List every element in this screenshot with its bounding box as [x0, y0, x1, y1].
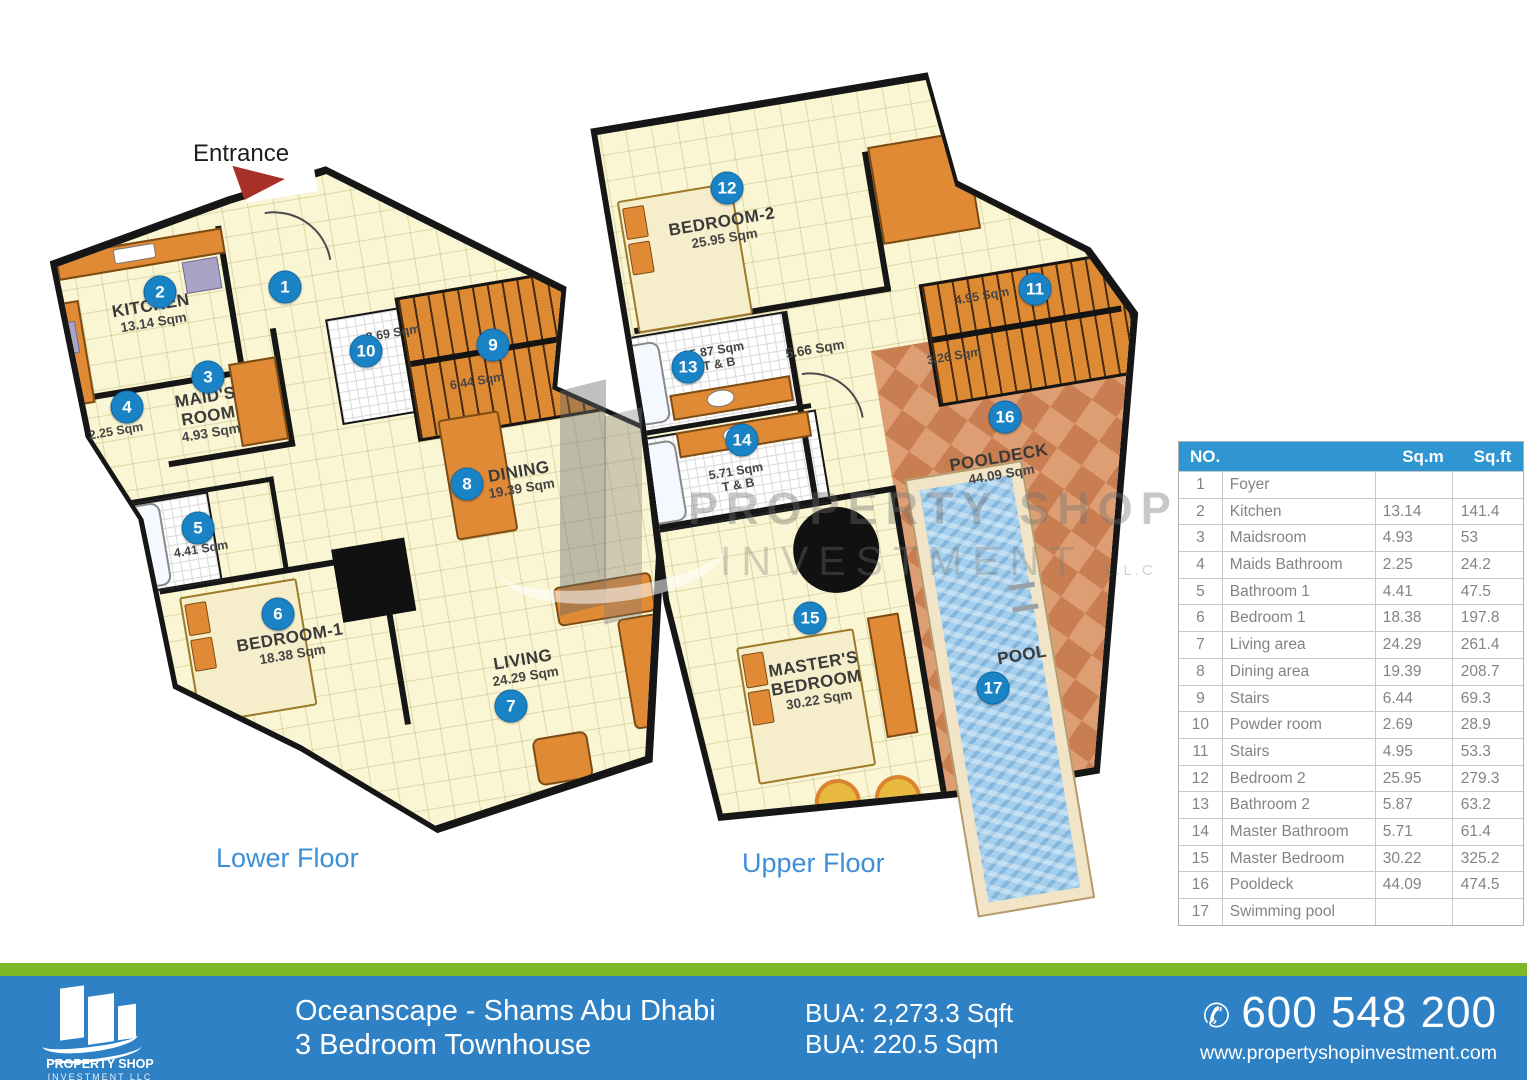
table-cell: 12 [1179, 766, 1223, 792]
bua-values: BUA: 2,273.3 Sqft BUA: 220.5 Sqm [805, 998, 1013, 1060]
structural-column [787, 500, 886, 599]
table-cell: 6 [1179, 605, 1223, 631]
table-cell: Swimming pool [1223, 899, 1376, 925]
table-cell: 17 [1179, 899, 1223, 925]
table-cell: 279.3 [1453, 766, 1523, 792]
area-table: NO. Sq.m Sq.ft 1Foyer2Kitchen13.14141.43… [1178, 441, 1524, 926]
table-row: 8Dining area19.39208.7 [1179, 658, 1523, 685]
table-cell: 4 [1179, 552, 1223, 578]
room-badge-13: 13 [672, 351, 705, 384]
area-table-body: 1Foyer2Kitchen13.14141.43Maidsroom4.9353… [1179, 471, 1523, 925]
phone-number-text: 600 548 200 [1241, 988, 1497, 1037]
table-row: 9Stairs6.4469.3 [1179, 685, 1523, 712]
table-row: 12Bedroom 225.95279.3 [1179, 765, 1523, 792]
table-cell: 28.9 [1453, 712, 1523, 738]
phone-icon: ✆ [1203, 997, 1232, 1034]
table-cell: 2 [1179, 499, 1223, 525]
hall-door-arc [802, 364, 864, 426]
table-cell: 7 [1179, 632, 1223, 658]
phone-number: ✆600 548 200 [1200, 988, 1497, 1041]
room-badge-14: 14 [726, 424, 759, 457]
table-cell: Pooldeck [1223, 872, 1376, 898]
table-cell: 325.2 [1453, 846, 1523, 872]
table-row: 5Bathroom 14.4147.5 [1179, 578, 1523, 605]
upper-floor-caption: Upper Floor [742, 848, 885, 879]
table-row: 7Living area24.29261.4 [1179, 631, 1523, 658]
table-cell: 4.95 [1376, 739, 1453, 765]
table-cell: 474.5 [1453, 872, 1523, 898]
table-cell: 53.3 [1453, 739, 1523, 765]
table-cell: Bedroom 1 [1223, 605, 1376, 631]
table-cell: 24.2 [1453, 552, 1523, 578]
table-row: 2Kitchen13.14141.4 [1179, 498, 1523, 525]
project-name: Oceanscape - Shams Abu Dhabi [295, 994, 716, 1028]
table-cell: Stairs [1223, 739, 1376, 765]
room-badge-3: 3 [192, 361, 225, 394]
entrance-label: Entrance [193, 140, 289, 168]
table-cell: 10 [1179, 712, 1223, 738]
area-table-header: NO. Sq.m Sq.ft [1179, 442, 1523, 471]
lower-floor-caption: Lower Floor [216, 843, 359, 874]
table-cell: 261.4 [1453, 632, 1523, 658]
wall-segment [268, 476, 289, 571]
table-cell: Bedroom 2 [1223, 766, 1376, 792]
table-cell: 5 [1179, 579, 1223, 605]
table-cell: 3 [1179, 525, 1223, 551]
table-cell: Maidsroom [1223, 525, 1376, 551]
header-no: NO. [1179, 447, 1384, 467]
table-cell: Kitchen [1223, 499, 1376, 525]
table-cell: Master Bathroom [1223, 819, 1376, 845]
footer-green-bar [0, 963, 1527, 976]
table-row: 1Foyer [1179, 471, 1523, 498]
bua-sqft: BUA: 2,273.3 Sqft [805, 998, 1013, 1029]
unit-type: 3 Bedroom Townhouse [295, 1028, 716, 1062]
website-url: www.propertyshopinvestment.com [1200, 1042, 1497, 1065]
table-row: 10Powder room2.6928.9 [1179, 711, 1523, 738]
project-title: Oceanscape - Shams Abu Dhabi 3 Bedroom T… [295, 994, 716, 1062]
table-row: 14Master Bathroom5.7161.4 [1179, 818, 1523, 845]
table-cell: 197.8 [1453, 605, 1523, 631]
room-badge-8: 8 [451, 468, 484, 501]
table-row: 13Bathroom 25.8763.2 [1179, 791, 1523, 818]
table-cell: 14 [1179, 819, 1223, 845]
logo-subtext: INVESTMENT LLC [30, 1072, 170, 1080]
room-badge-12: 12 [711, 172, 744, 205]
table-cell: 8 [1179, 659, 1223, 685]
table-cell: 11 [1179, 739, 1223, 765]
table-cell: Foyer [1223, 472, 1376, 498]
table-cell: Dining area [1223, 659, 1376, 685]
table-cell: 141.4 [1453, 499, 1523, 525]
entrance-door-arc [264, 203, 331, 270]
room-badge-1: 1 [269, 271, 302, 304]
table-cell: 25.95 [1376, 766, 1453, 792]
bua-sqm: BUA: 220.5 Sqm [805, 1029, 1013, 1060]
table-cell: 1 [1179, 472, 1223, 498]
table-cell [1376, 472, 1453, 498]
table-cell: 44.09 [1376, 872, 1453, 898]
upper-plan-floor [517, 20, 1222, 890]
table-cell: 6.44 [1376, 686, 1453, 712]
table-cell: 24.29 [1376, 632, 1453, 658]
room-badge-10: 10 [350, 335, 383, 368]
table-cell: Master Bedroom [1223, 846, 1376, 872]
header-sqm: Sq.m [1384, 447, 1462, 467]
room-badge-9: 9 [477, 329, 510, 362]
table-row: 3Maidsroom4.9353 [1179, 524, 1523, 551]
table-row: 11Stairs4.9553.3 [1179, 738, 1523, 765]
room-badge-6: 6 [262, 598, 295, 631]
table-cell: Bathroom 2 [1223, 792, 1376, 818]
table-cell: 61.4 [1453, 819, 1523, 845]
room-badge-11: 11 [1019, 273, 1052, 306]
table-cell [1376, 899, 1453, 925]
structural-column [331, 538, 416, 623]
table-cell: 53 [1453, 525, 1523, 551]
room-badge-15: 15 [794, 602, 827, 635]
room-badge-5: 5 [182, 512, 215, 545]
table-cell: 4.41 [1376, 579, 1453, 605]
floorplan-poster: PROPERTY SHOP INVESTMENT L.L.C Entrance … [0, 0, 1527, 1080]
table-cell: 13 [1179, 792, 1223, 818]
table-cell: 13.14 [1376, 499, 1453, 525]
table-row: 6Bedroom 118.38197.8 [1179, 604, 1523, 631]
table-cell: 5.87 [1376, 792, 1453, 818]
table-cell: Bathroom 1 [1223, 579, 1376, 605]
table-cell: 18.38 [1376, 605, 1453, 631]
table-row: 4Maids Bathroom2.2524.2 [1179, 551, 1523, 578]
table-cell: 2.69 [1376, 712, 1453, 738]
room-badge-2: 2 [144, 276, 177, 309]
table-cell: 15 [1179, 846, 1223, 872]
table-cell: 63.2 [1453, 792, 1523, 818]
room-badge-16: 16 [989, 401, 1022, 434]
contact-block: ✆600 548 200 www.propertyshopinvestment.… [1200, 988, 1497, 1065]
table-row: 15Master Bedroom30.22325.2 [1179, 845, 1523, 872]
table-cell: Stairs [1223, 686, 1376, 712]
header-sqft: Sq.ft [1462, 447, 1523, 467]
fridge [182, 257, 223, 295]
table-cell: 47.5 [1453, 579, 1523, 605]
table-cell: 30.22 [1376, 846, 1453, 872]
dresser [867, 612, 919, 738]
table-cell: 9 [1179, 686, 1223, 712]
table-cell: Living area [1223, 632, 1376, 658]
table-row: 16Pooldeck44.09474.5 [1179, 871, 1523, 898]
table-cell: 16 [1179, 872, 1223, 898]
table-cell: Powder room [1223, 712, 1376, 738]
room-badge-4: 4 [111, 391, 144, 424]
table-cell: 69.3 [1453, 686, 1523, 712]
table-row: 17Swimming pool [1179, 898, 1523, 925]
table-cell: 2.25 [1376, 552, 1453, 578]
logo-text: PROPERTY SHOP [30, 1057, 170, 1071]
room-badge-7: 7 [495, 690, 528, 723]
property-shop-logo: PROPERTY SHOP INVESTMENT LLC [30, 985, 170, 1077]
table-cell: Maids Bathroom [1223, 552, 1376, 578]
room-badge-17: 17 [977, 672, 1010, 705]
table-cell: 4.93 [1376, 525, 1453, 551]
table-cell: 19.39 [1376, 659, 1453, 685]
table-cell: 5.71 [1376, 819, 1453, 845]
table-cell: 208.7 [1453, 659, 1523, 685]
